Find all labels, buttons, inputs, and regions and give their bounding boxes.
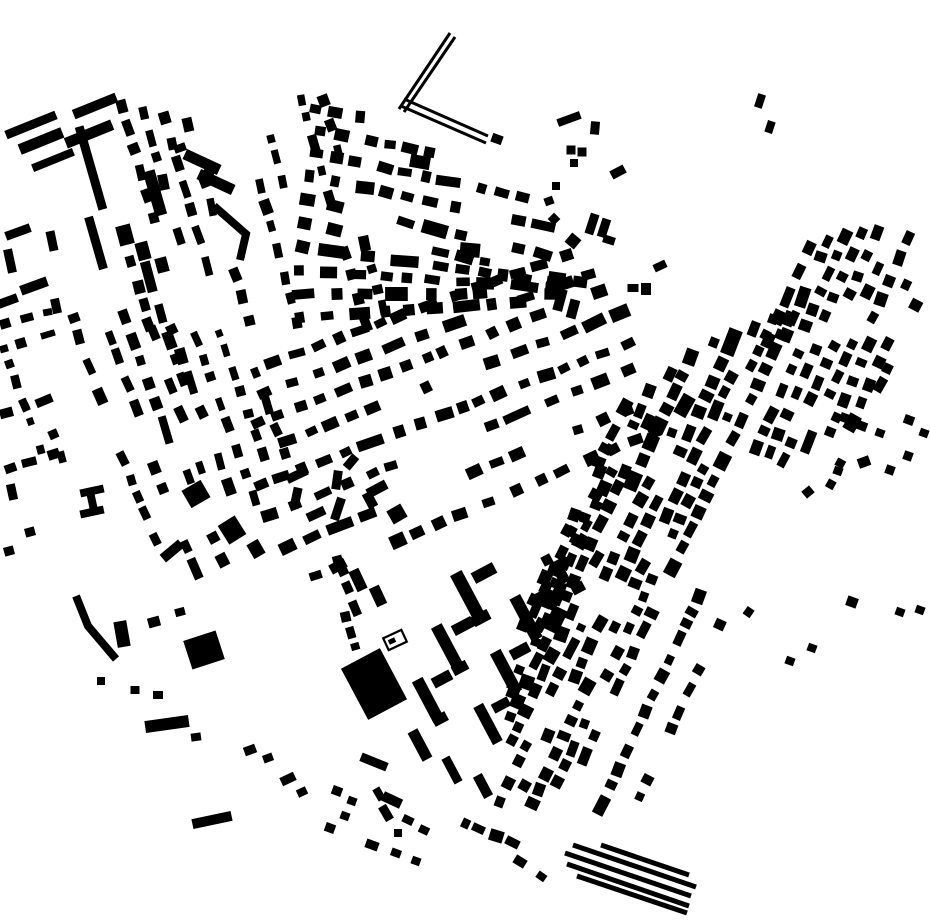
building-footprint bbox=[334, 382, 353, 397]
building-footprint bbox=[518, 378, 531, 389]
building-footprint bbox=[327, 106, 343, 119]
building-footprint bbox=[195, 404, 209, 419]
building-footprint bbox=[776, 452, 790, 469]
building-footprint bbox=[181, 117, 194, 133]
building-footprint bbox=[708, 336, 720, 348]
building-footprint bbox=[253, 477, 269, 491]
building-footprint bbox=[692, 663, 706, 677]
building-footprint bbox=[764, 445, 776, 460]
building-footprint bbox=[459, 242, 480, 258]
building-footprint bbox=[534, 473, 548, 487]
building-footprint bbox=[72, 329, 85, 346]
building-footprint bbox=[184, 202, 197, 217]
building-footprint bbox=[320, 311, 333, 321]
building-footprint bbox=[558, 758, 572, 772]
building-footprint bbox=[564, 714, 578, 728]
building-footprint bbox=[131, 686, 140, 694]
building-footprint bbox=[434, 406, 454, 422]
building-footprint bbox=[269, 422, 282, 437]
building-footprint bbox=[566, 299, 581, 320]
building-footprint bbox=[667, 528, 679, 540]
building-footprint bbox=[420, 170, 431, 183]
building-footprint bbox=[272, 243, 283, 259]
building-footprint bbox=[676, 540, 690, 555]
building-footprint bbox=[441, 756, 462, 785]
building-footprint bbox=[559, 248, 574, 263]
building-footprint bbox=[341, 648, 407, 720]
building-footprint bbox=[266, 134, 275, 144]
building-footprint bbox=[234, 385, 246, 397]
building-footprint bbox=[312, 367, 325, 379]
building-footprint bbox=[471, 562, 498, 584]
building-footprint bbox=[345, 626, 356, 640]
building-footprint bbox=[299, 193, 316, 207]
building-footprint bbox=[97, 677, 105, 685]
building-footprint bbox=[218, 515, 247, 544]
building-footprint bbox=[908, 298, 923, 313]
building-footprint bbox=[317, 243, 344, 259]
building-footprint bbox=[538, 766, 554, 783]
building-footprint bbox=[821, 234, 834, 249]
building-footprint bbox=[771, 427, 786, 442]
building-footprint bbox=[590, 121, 600, 135]
building-footprint bbox=[597, 218, 611, 239]
building-footprint bbox=[172, 227, 185, 246]
building-footprint bbox=[855, 226, 868, 240]
building-footprint bbox=[401, 272, 412, 283]
building-footprint bbox=[4, 223, 32, 240]
building-footprint bbox=[309, 148, 323, 158]
building-footprint bbox=[691, 588, 707, 606]
building-footprint bbox=[377, 366, 393, 382]
building-footprint bbox=[460, 817, 471, 829]
building-footprint bbox=[113, 620, 130, 648]
building-footprint bbox=[127, 142, 141, 156]
building-footprint bbox=[421, 219, 449, 239]
building-footprint bbox=[560, 325, 579, 341]
building-footprint bbox=[191, 225, 205, 245]
building-footprint bbox=[504, 835, 521, 849]
building-footprint bbox=[355, 111, 365, 124]
linear-building-strip bbox=[214, 206, 246, 260]
building-footprint bbox=[432, 261, 449, 273]
building-footprint bbox=[892, 249, 906, 267]
building-footprint bbox=[632, 491, 649, 509]
building-footprint bbox=[750, 377, 766, 392]
building-footprint bbox=[271, 149, 281, 164]
building-footprint bbox=[501, 775, 516, 791]
building-footprint bbox=[278, 538, 298, 556]
building-footprint bbox=[313, 393, 327, 405]
building-footprint bbox=[138, 106, 149, 120]
building-footprint bbox=[806, 643, 817, 654]
building-footprint bbox=[0, 407, 14, 420]
building-footprint bbox=[330, 175, 341, 187]
building-footprint bbox=[698, 388, 715, 403]
linear-building-strip bbox=[399, 33, 450, 109]
building-footprint bbox=[754, 93, 766, 109]
building-footprint bbox=[641, 383, 656, 399]
building-footprint bbox=[590, 372, 610, 390]
building-footprint bbox=[791, 263, 806, 280]
building-footprint bbox=[280, 271, 290, 285]
building-footprint bbox=[635, 452, 650, 468]
building-footprint bbox=[515, 191, 530, 204]
building-footprint bbox=[592, 514, 609, 534]
building-footprint bbox=[373, 317, 387, 329]
building-footprint bbox=[512, 854, 527, 868]
building-footprint bbox=[643, 606, 659, 620]
building-footprint bbox=[456, 400, 470, 414]
building-footprint bbox=[595, 411, 611, 427]
building-footprint bbox=[325, 516, 354, 535]
building-footprint bbox=[664, 654, 675, 666]
building-footprint bbox=[294, 400, 308, 413]
building-footprint bbox=[376, 161, 394, 176]
building-footprint bbox=[696, 426, 713, 445]
building-footprint bbox=[509, 483, 524, 498]
building-footprint bbox=[576, 355, 589, 368]
building-footprint bbox=[4, 462, 18, 474]
building-footprint bbox=[158, 110, 172, 125]
building-footprint bbox=[550, 774, 565, 790]
building-footprint bbox=[340, 476, 355, 490]
building-footprint bbox=[144, 715, 189, 733]
building-footprint bbox=[473, 773, 493, 799]
building-footprint bbox=[592, 794, 611, 817]
building-footprint bbox=[366, 467, 380, 480]
building-footprint bbox=[544, 394, 560, 407]
building-footprint bbox=[295, 239, 311, 254]
linear-building-strip bbox=[401, 106, 486, 143]
building-footprint bbox=[775, 383, 788, 399]
building-footprint bbox=[369, 585, 387, 608]
building-footprint bbox=[800, 429, 817, 454]
building-footprint bbox=[278, 175, 288, 189]
building-footprint bbox=[548, 746, 563, 762]
building-footprint bbox=[149, 532, 162, 547]
building-footprint bbox=[552, 182, 560, 190]
building-footprint bbox=[814, 285, 827, 297]
building-footprint bbox=[258, 198, 274, 216]
building-footprint bbox=[918, 428, 929, 439]
building-footprint bbox=[296, 786, 308, 797]
building-footprint bbox=[277, 433, 297, 448]
building-footprint bbox=[792, 348, 804, 360]
building-footprint bbox=[34, 393, 53, 408]
building-footprint bbox=[358, 374, 374, 389]
building-footprint bbox=[802, 240, 817, 256]
building-footprint bbox=[10, 374, 22, 389]
building-footprint bbox=[901, 230, 915, 246]
building-footprint bbox=[640, 512, 656, 529]
building-footprint bbox=[451, 616, 476, 636]
building-footprint bbox=[14, 337, 27, 350]
building-footprint bbox=[340, 611, 352, 623]
building-footprint bbox=[811, 375, 825, 391]
building-footprint bbox=[873, 291, 889, 308]
building-footprint bbox=[105, 330, 117, 346]
linear-building-strip bbox=[76, 596, 116, 659]
building-footprint bbox=[581, 312, 607, 333]
building-footprint bbox=[624, 546, 641, 564]
building-footprint bbox=[553, 464, 571, 479]
building-footprint bbox=[837, 228, 854, 246]
building-footprint bbox=[138, 297, 150, 312]
building-footprint bbox=[3, 248, 17, 273]
building-footprint bbox=[577, 746, 593, 766]
building-footprint bbox=[285, 377, 299, 388]
building-footprint bbox=[388, 531, 408, 550]
building-footprint bbox=[838, 351, 852, 367]
building-footprint bbox=[828, 340, 841, 353]
building-footprint bbox=[302, 112, 311, 122]
building-footprint bbox=[187, 557, 204, 581]
building-footprint bbox=[385, 287, 408, 301]
building-footprint bbox=[243, 744, 257, 757]
building-footprint bbox=[902, 450, 914, 462]
building-footprint bbox=[894, 607, 905, 618]
building-footprint bbox=[360, 250, 375, 262]
building-footprint bbox=[641, 283, 651, 295]
building-footprint bbox=[870, 224, 885, 241]
building-footprint bbox=[874, 428, 885, 439]
building-footprint bbox=[572, 700, 584, 712]
building-footprint bbox=[537, 367, 557, 384]
building-footprint bbox=[126, 474, 137, 486]
building-footprint bbox=[87, 493, 98, 509]
building-footprint bbox=[452, 299, 480, 313]
building-footprint bbox=[43, 308, 53, 316]
building-footprint bbox=[791, 386, 803, 401]
building-footprint bbox=[626, 646, 640, 661]
building-footprint bbox=[266, 220, 276, 233]
building-footprint bbox=[352, 270, 366, 280]
building-footprint bbox=[713, 355, 729, 372]
building-footprint bbox=[350, 324, 370, 338]
building-footprint bbox=[690, 504, 706, 521]
building-footprint bbox=[132, 279, 146, 294]
building-footprint bbox=[606, 551, 620, 566]
building-footprint bbox=[803, 391, 818, 407]
building-footprint bbox=[390, 255, 419, 268]
building-footprint bbox=[419, 380, 433, 394]
building-footprint bbox=[158, 415, 174, 444]
building-footprint bbox=[20, 312, 35, 323]
building-footprint bbox=[505, 733, 518, 747]
building-footprint bbox=[575, 554, 589, 572]
building-footprint bbox=[680, 493, 696, 509]
building-footprint bbox=[855, 357, 868, 368]
building-footprint bbox=[588, 550, 604, 568]
building-footprint bbox=[228, 366, 239, 381]
building-footprint bbox=[747, 320, 761, 338]
building-footprint bbox=[431, 246, 449, 258]
building-footprint bbox=[250, 367, 261, 379]
building-footprint bbox=[845, 595, 859, 608]
building-footprint bbox=[843, 287, 857, 301]
building-footprint bbox=[84, 216, 108, 270]
building-footprint bbox=[320, 266, 337, 278]
building-footprint bbox=[190, 732, 201, 741]
building-footprint bbox=[331, 785, 343, 797]
building-footprint bbox=[135, 355, 146, 367]
building-footprint bbox=[260, 507, 279, 523]
building-footprint bbox=[409, 525, 426, 540]
building-footprint bbox=[414, 416, 428, 430]
building-footprint bbox=[330, 497, 346, 522]
building-footprint bbox=[590, 283, 608, 300]
building-footprint bbox=[615, 565, 632, 583]
building-footprint bbox=[250, 428, 262, 442]
building-footprint bbox=[451, 507, 469, 522]
building-footprint bbox=[785, 363, 797, 375]
building-footprint bbox=[442, 314, 467, 333]
building-footprint bbox=[663, 558, 682, 579]
building-footprint bbox=[243, 315, 255, 327]
building-footprint bbox=[24, 526, 36, 537]
building-footprint bbox=[115, 223, 135, 246]
building-footprint bbox=[764, 120, 775, 134]
building-footprint bbox=[725, 430, 740, 447]
building-footprint bbox=[279, 447, 291, 460]
building-footprint bbox=[357, 507, 377, 523]
building-footprint bbox=[682, 348, 699, 367]
building-footprint bbox=[638, 704, 653, 720]
building-footprint bbox=[305, 425, 319, 437]
building-footprint bbox=[763, 405, 780, 424]
building-footprint bbox=[326, 199, 345, 214]
building-footprint bbox=[164, 377, 178, 395]
building-footprint bbox=[819, 357, 833, 370]
building-footprint bbox=[64, 120, 114, 149]
building-footprint bbox=[364, 135, 379, 148]
building-footprint bbox=[579, 718, 590, 730]
building-footprint bbox=[649, 494, 664, 511]
building-footprint bbox=[215, 329, 224, 338]
building-footprint bbox=[664, 722, 678, 736]
building-footprint bbox=[240, 468, 252, 480]
building-footprint bbox=[488, 828, 505, 843]
building-footprint bbox=[399, 359, 414, 373]
building-footprint bbox=[314, 486, 333, 500]
building-footprint bbox=[627, 577, 642, 591]
building-footprint bbox=[486, 298, 497, 311]
building-footprint bbox=[672, 630, 686, 647]
linear-building-strip bbox=[577, 876, 687, 913]
building-footprint bbox=[697, 463, 710, 475]
building-footprint bbox=[588, 729, 601, 742]
building-footprint bbox=[359, 753, 388, 772]
building-footprint bbox=[620, 743, 634, 759]
building-footprint bbox=[397, 167, 412, 177]
building-footprint bbox=[358, 235, 371, 252]
building-footprint bbox=[171, 155, 185, 173]
building-footprint bbox=[510, 344, 529, 359]
building-footprint bbox=[489, 385, 508, 402]
building-footprint bbox=[631, 605, 644, 617]
building-footprint bbox=[378, 804, 394, 822]
building-footprint bbox=[511, 214, 527, 227]
building-footprint bbox=[672, 705, 685, 721]
building-footprint bbox=[339, 811, 350, 822]
building-footprint bbox=[380, 271, 393, 281]
building-footprint bbox=[690, 476, 704, 489]
building-footprint bbox=[505, 316, 522, 332]
building-footprint bbox=[288, 347, 306, 359]
building-footprint bbox=[134, 241, 151, 262]
building-footprint bbox=[214, 452, 226, 470]
building-footprint bbox=[422, 195, 439, 208]
building-footprint bbox=[584, 213, 599, 236]
building-footprint bbox=[508, 446, 526, 463]
building-footprint bbox=[632, 530, 648, 548]
building-footprint bbox=[855, 396, 867, 409]
building-footprint bbox=[623, 622, 635, 635]
building-footprint bbox=[363, 400, 381, 415]
building-footprint bbox=[364, 839, 379, 852]
building-footprint bbox=[26, 417, 35, 426]
building-footprint bbox=[914, 605, 925, 616]
building-footprint bbox=[82, 358, 96, 376]
building-footprint bbox=[92, 387, 109, 406]
building-footprint bbox=[248, 490, 260, 507]
building-footprint bbox=[683, 520, 698, 538]
building-footprint bbox=[147, 460, 162, 476]
building-footprint bbox=[872, 261, 885, 276]
building-footprint bbox=[638, 591, 649, 603]
building-footprint bbox=[19, 277, 49, 296]
building-footprint bbox=[394, 829, 402, 837]
building-footprint bbox=[455, 264, 470, 275]
building-footprint bbox=[809, 343, 822, 356]
building-footprint bbox=[722, 412, 733, 423]
building-footprint bbox=[576, 623, 586, 633]
building-footprint bbox=[826, 291, 839, 303]
building-footprint bbox=[292, 288, 315, 300]
building-footprint bbox=[779, 286, 795, 309]
building-footprint bbox=[325, 222, 343, 238]
building-footprint bbox=[199, 354, 210, 367]
building-footprint bbox=[645, 573, 658, 586]
building-footprint bbox=[126, 332, 142, 351]
building-footprint bbox=[752, 345, 765, 358]
building-footprint bbox=[609, 165, 626, 180]
building-footprint bbox=[250, 416, 266, 430]
building-footprint bbox=[256, 386, 272, 400]
building-footprint bbox=[279, 772, 296, 786]
building-footprint bbox=[400, 191, 414, 203]
building-footprint bbox=[214, 552, 230, 569]
building-footprint bbox=[698, 488, 715, 503]
building-footprint bbox=[309, 570, 323, 582]
building-footprint bbox=[21, 456, 37, 468]
building-footprint bbox=[357, 289, 372, 300]
building-footprint bbox=[484, 418, 500, 432]
building-footprint bbox=[206, 530, 220, 544]
building-footprint bbox=[723, 370, 738, 385]
building-footprint bbox=[383, 460, 398, 472]
building-footprint bbox=[431, 515, 448, 531]
building-footprint bbox=[221, 416, 235, 433]
building-footprint bbox=[356, 433, 385, 452]
building-footprint bbox=[813, 250, 827, 263]
building-footprint bbox=[545, 682, 559, 698]
building-footprint bbox=[125, 255, 137, 268]
building-footprint bbox=[882, 274, 896, 289]
building-footprint bbox=[174, 607, 186, 617]
building-footprint bbox=[567, 146, 576, 155]
